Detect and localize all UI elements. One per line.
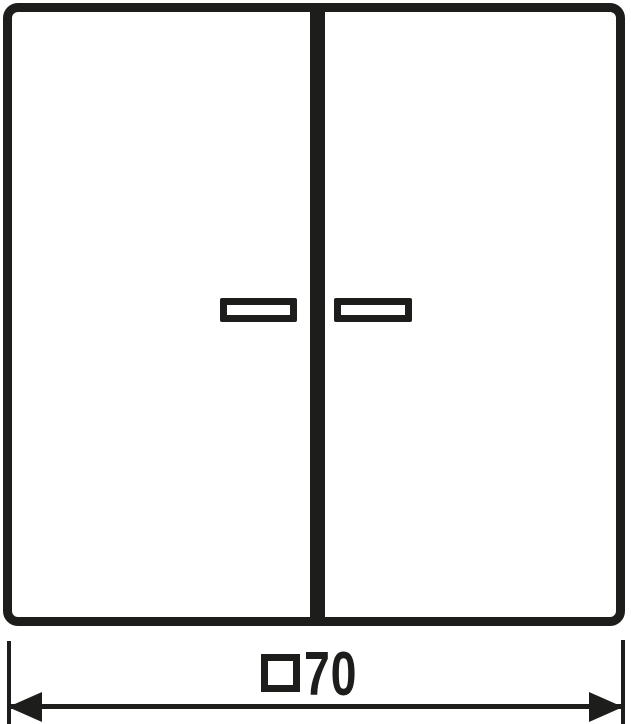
right-indicator-window	[334, 298, 412, 322]
rocker-divider-line	[310, 3, 325, 626]
technical-drawing: 70	[0, 0, 631, 724]
left-arrowhead-icon	[8, 692, 42, 722]
right-arrowhead-icon	[589, 692, 623, 722]
dimension-value: 70	[304, 652, 357, 697]
square-dimension-icon	[261, 654, 300, 692]
left-indicator-window	[220, 298, 297, 322]
